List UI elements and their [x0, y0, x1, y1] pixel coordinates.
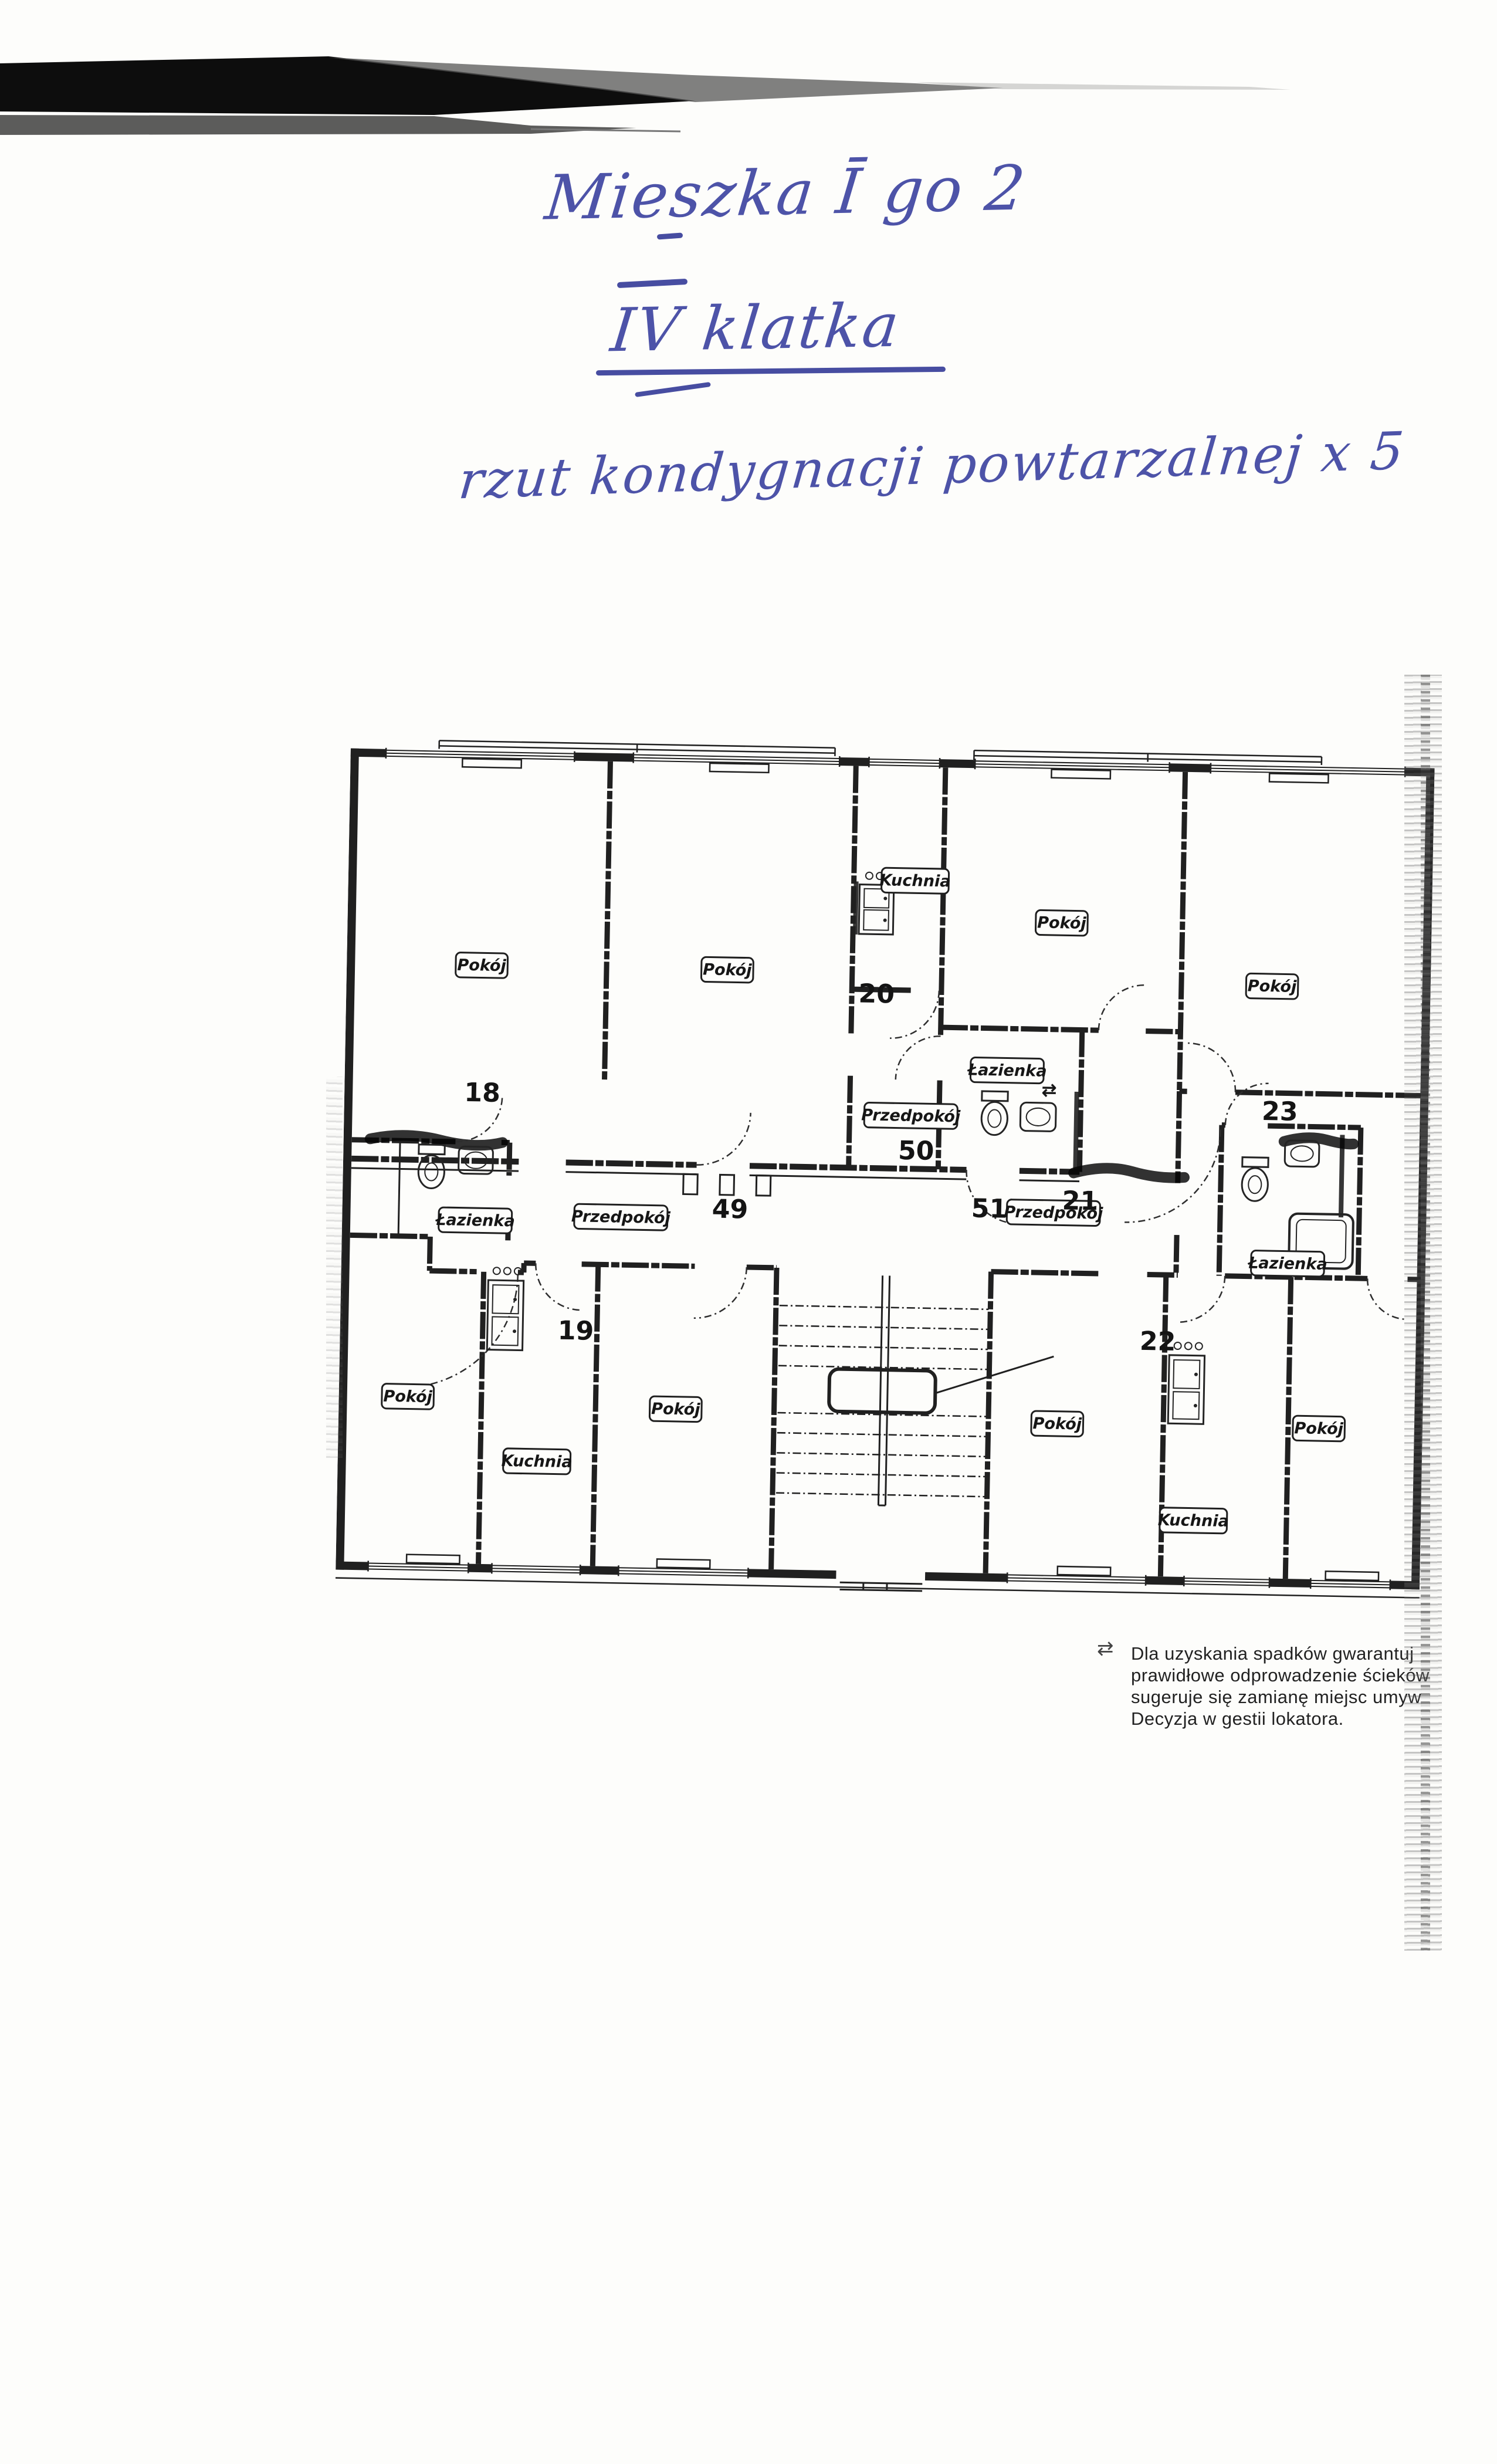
floor-plan-drawing: ⇄ [336, 728, 1435, 1605]
svg-text:Pokój: Pokój [1248, 977, 1298, 996]
room-label-pokoj-bottom-far-left: Pokój [382, 1384, 434, 1410]
room-label-pokoj-bottom-mid-left: Pokój [649, 1396, 702, 1422]
apartment-number-23: 23 [1262, 1096, 1298, 1127]
svg-text:Pokój: Pokój [703, 960, 753, 980]
handwritten-title-line2: IV klatka [608, 291, 904, 366]
room-label-kuchnia-bottom-right: Kuchnia [1157, 1508, 1229, 1534]
room-label-przedpokoj-49: Przedpokój [571, 1204, 671, 1230]
room-label-pokoj-bottom-far-right: Pokój [1293, 1416, 1345, 1441]
room-label-lazienka-right: Łazienka [1247, 1250, 1327, 1277]
room-label-pokoj-top-mid-right: Pokój [1035, 910, 1088, 936]
room-label-pokoj-top-right: Pokój [1246, 973, 1298, 999]
room-label-przedpokoj-50: Przedpokój [861, 1102, 961, 1129]
svg-text:Pokój: Pokój [651, 1400, 701, 1419]
apartment-number-19: 19 [557, 1316, 594, 1346]
pipe-smudge-center [1073, 1167, 1184, 1178]
room-label-lazienka-mid: Łazienka [967, 1057, 1047, 1084]
staircase [776, 1274, 1055, 1508]
bottom-windows [368, 1558, 1390, 1599]
svg-text:Kuchnia: Kuchnia [879, 871, 951, 891]
svg-text:Pokój: Pokój [1037, 913, 1087, 933]
handwritten-subtitle-line3: rzut kondygnacji powtarzalnej x 5 [456, 420, 1408, 510]
top-windows [386, 748, 1405, 777]
apartment-number-20: 20 [858, 979, 895, 1009]
scanner-streak-artifact [0, 0, 1497, 164]
swap-arrows-icon: ⇄ [1097, 1638, 1114, 1660]
stair-direction-line [935, 1355, 1054, 1396]
handwritten-underline [596, 367, 946, 375]
room-label-pokoj-top-left: Pokój [456, 953, 508, 979]
scanned-page: Mieszka Ī go 2 IV klatka rzut kondygnacj… [0, 0, 1497, 2464]
room-label-pokoj-bottom-mid-right: Pokój [1031, 1411, 1083, 1437]
room-label-lazienka-left: Łazienka [435, 1207, 515, 1234]
bathroom-23-fixtures [1241, 1139, 1355, 1268]
svg-text:Przedpokój: Przedpokój [861, 1106, 961, 1126]
room-label-pokoj-top-mid-left: Pokój [701, 957, 753, 983]
hall-number-51: 51 [971, 1194, 1007, 1224]
bathroom-18-fixtures [418, 1145, 493, 1190]
swap-arrows-icon: ⇄ [1042, 1080, 1057, 1101]
handwritten-numeral-underline [657, 232, 683, 239]
apartment-number-21: 21 [1062, 1186, 1098, 1216]
handwritten-overline-dash [617, 279, 687, 288]
entrance-opening [835, 1567, 926, 1584]
svg-text:Pokój: Pokój [457, 956, 507, 976]
svg-text:Pokój: Pokój [1294, 1419, 1344, 1439]
apartment-number-22: 22 [1139, 1326, 1176, 1357]
svg-text:Pokój: Pokój [1032, 1414, 1082, 1434]
svg-text:Łazienka: Łazienka [435, 1211, 515, 1230]
floor-plan: ⇄ [336, 728, 1435, 1605]
scan-edge-noise-left [326, 1077, 343, 1458]
svg-text:Kuchnia: Kuchnia [501, 1452, 573, 1471]
handwritten-title-line1: Mieszka Ī go 2 [542, 152, 1030, 233]
svg-text:Pokój: Pokój [383, 1387, 433, 1407]
svg-text:Łazienka: Łazienka [967, 1061, 1047, 1080]
scan-edge-noise-core [1421, 675, 1430, 1951]
room-label-kuchnia-bottom-left: Kuchnia [501, 1448, 573, 1474]
scan-edge-noise-right [1404, 675, 1442, 1951]
hall-number-50: 50 [898, 1136, 934, 1166]
svg-text:Przedpokój: Przedpokój [571, 1207, 671, 1227]
apartment-number-18: 18 [464, 1078, 500, 1108]
hall-number-49: 49 [712, 1194, 748, 1225]
room-label-kuchnia-top: Kuchnia [879, 868, 951, 893]
handwritten-underline-flick [635, 382, 711, 397]
svg-text:Łazienka: Łazienka [1247, 1254, 1327, 1274]
svg-text:Kuchnia: Kuchnia [1158, 1511, 1230, 1531]
bathroom-21-fixtures: ⇄ [981, 1079, 1057, 1136]
stair-landing [829, 1369, 936, 1413]
